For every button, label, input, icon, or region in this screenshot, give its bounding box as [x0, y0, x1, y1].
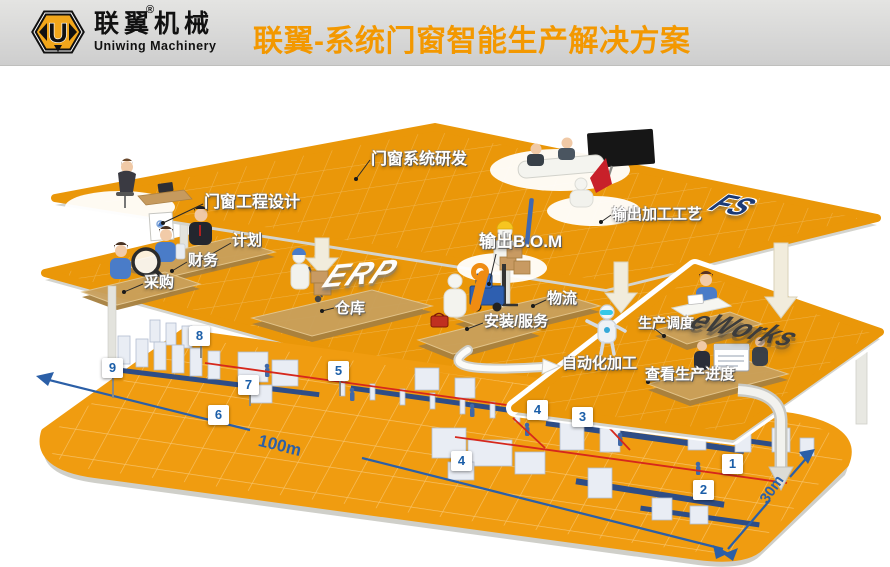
label-output-process: 输出加工工艺: [612, 203, 702, 224]
brand-text: 联翼机械 Uniwing Machinery: [94, 12, 216, 53]
svg-text:U: U: [48, 18, 68, 48]
toolbox: [431, 316, 448, 327]
station-badge-1: 1: [722, 454, 743, 474]
brand-name-en: Uniwing Machinery: [94, 40, 216, 53]
solution-infographic: U 联翼机械 Uniwing Machinery ® 联翼-系统门窗智能生产解决…: [0, 0, 890, 567]
uniwing-hexagon-logo-icon: U: [30, 5, 86, 59]
label-purchase: 采购: [144, 271, 174, 292]
support-leg: [108, 286, 116, 364]
station-badge-4b: 4: [451, 451, 472, 471]
station-badge-9: 9: [102, 358, 123, 378]
label-finance: 财务: [188, 249, 218, 270]
station-badge-2: 2: [693, 480, 714, 500]
station-badge-7: 7: [238, 375, 259, 395]
label-window-system-rd: 门窗系统研发: [371, 145, 467, 169]
station-badge-4a: 4: [527, 400, 548, 420]
label-plan: 计划: [232, 229, 262, 250]
brand-logo: U 联翼机械 Uniwing Machinery: [30, 5, 216, 59]
station-badge-6: 6: [208, 405, 229, 425]
page-title: 联翼-系统门窗智能生产解决方案: [253, 16, 691, 60]
label-logistics: 物流: [547, 287, 577, 308]
registered-trademark-mark: ®: [146, 4, 154, 16]
water-cup: [176, 244, 185, 259]
label-warehouse: 仓库: [335, 297, 365, 318]
label-automated-processing: 自动化加工: [562, 352, 637, 373]
brand-name-cn: 联翼机械: [94, 12, 216, 37]
label-view-production-progress: 查看生产进度: [645, 363, 735, 384]
header-bar: U 联翼机械 Uniwing Machinery ® 联翼-系统门窗智能生产解决…: [0, 0, 890, 66]
label-install-service: 安装/服务: [484, 310, 548, 331]
diagram-canvas: [0, 0, 890, 567]
label-window-engineering-design: 门窗工程设计: [204, 188, 300, 212]
station-badge-3: 3: [572, 407, 593, 427]
label-output-bom: 输出B.O.M: [479, 227, 562, 252]
robot-visor: [600, 310, 613, 315]
station-badge-5: 5: [328, 361, 349, 381]
station-badge-8: 8: [189, 326, 210, 346]
